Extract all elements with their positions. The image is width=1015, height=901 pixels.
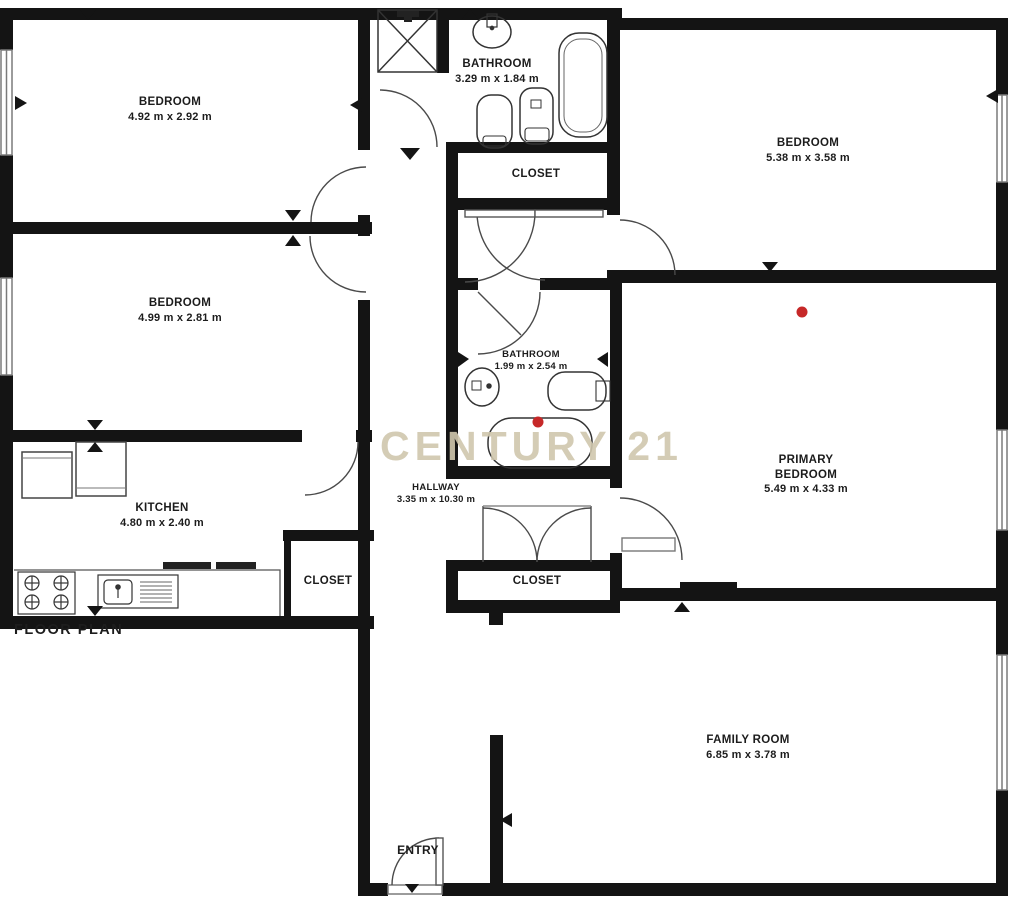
marker-triangle bbox=[986, 89, 998, 103]
door-arc-vestibule-left bbox=[465, 212, 535, 282]
room-name: CLOSET bbox=[513, 574, 561, 589]
room-label-bedroom-top-right: BEDROOM 5.38 m x 3.58 m bbox=[766, 136, 850, 165]
room-name: FAMILY ROOM bbox=[706, 733, 790, 748]
room-name: BATHROOM bbox=[455, 57, 539, 72]
room-label-primary-bedroom: PRIMARY BEDROOM 5.49 m x 4.33 m bbox=[764, 453, 848, 497]
room-dims: 4.80 m x 2.40 m bbox=[120, 516, 204, 530]
window bbox=[1, 278, 12, 375]
room-label-bathroom-mid: BATHROOM 1.99 m x 2.54 m bbox=[495, 349, 568, 373]
room-dims: 5.49 m x 4.33 m bbox=[764, 482, 848, 496]
marker-triangle bbox=[87, 606, 103, 616]
marker-triangle bbox=[597, 352, 608, 367]
kitchen-sink-icon bbox=[98, 575, 178, 608]
room-name: ENTRY bbox=[397, 843, 439, 858]
fixtures-layer bbox=[14, 10, 610, 616]
century21-watermark: CENTURY 21 bbox=[380, 423, 683, 470]
room-name: BEDROOM bbox=[128, 95, 212, 110]
room-label-hallway: HALLWAY 3.35 m x 10.30 m bbox=[397, 482, 475, 506]
room-label-bedroom-top-left: BEDROOM 4.92 m x 2.92 m bbox=[128, 95, 212, 124]
window bbox=[997, 655, 1007, 790]
door-arc-hall-closet-left bbox=[483, 508, 537, 562]
bidet-icon bbox=[520, 88, 553, 144]
stove-icon bbox=[18, 572, 75, 614]
marker-triangle bbox=[458, 352, 469, 367]
room-dims: 4.92 m x 2.92 m bbox=[128, 110, 212, 124]
door-leaf-bathroom-mid bbox=[478, 292, 521, 335]
room-label-bathroom-top: BATHROOM 3.29 m x 1.84 m bbox=[455, 57, 539, 86]
room-dims: 5.38 m x 3.58 m bbox=[766, 151, 850, 165]
room-label-bedroom-mid-left: BEDROOM 4.99 m x 2.81 m bbox=[138, 296, 222, 325]
toilet-icon bbox=[465, 368, 499, 406]
room-dims: 3.35 m x 10.30 m bbox=[397, 494, 475, 506]
room-name: BEDROOM bbox=[764, 468, 848, 483]
red-dot-marker bbox=[797, 307, 808, 318]
window bbox=[997, 430, 1007, 530]
marker-triangle bbox=[285, 210, 301, 221]
marker-triangle bbox=[87, 420, 103, 430]
floor-plan-title: FLOOR PLAN bbox=[14, 622, 123, 638]
marker-triangle bbox=[674, 602, 690, 612]
shower-icon bbox=[378, 10, 437, 72]
closet-door-panel bbox=[465, 210, 535, 217]
marker-triangle bbox=[15, 96, 27, 110]
door-arc-bedroom-top-right bbox=[620, 220, 675, 275]
room-label-closet-top: CLOSET bbox=[512, 167, 560, 182]
door-arc-bathroom-top bbox=[380, 90, 437, 147]
door-arc-bedroom-top-left bbox=[311, 167, 366, 222]
bathtub-icon bbox=[559, 33, 607, 137]
marker-triangle bbox=[350, 98, 362, 112]
door-arc-kitchen bbox=[305, 442, 358, 495]
room-name: PRIMARY bbox=[764, 453, 848, 468]
refrigerator-icon bbox=[22, 452, 72, 498]
toilet-icon bbox=[477, 95, 512, 148]
room-label-family-room: FAMILY ROOM 6.85 m x 3.78 m bbox=[706, 733, 790, 762]
floorplan-canvas: BEDROOM 4.92 m x 2.92 m BATHROOM 3.29 m … bbox=[0, 0, 1015, 901]
marker-triangle bbox=[285, 235, 301, 246]
room-name: CLOSET bbox=[304, 574, 352, 589]
marker-triangle bbox=[87, 442, 103, 452]
room-dims: 6.85 m x 3.78 m bbox=[706, 748, 790, 762]
room-label-closet-hall: CLOSET bbox=[513, 574, 561, 589]
door-arc-hall-closet-right bbox=[537, 508, 591, 562]
room-name: KITCHEN bbox=[120, 501, 204, 516]
window bbox=[997, 95, 1007, 182]
primary-closet-shelf bbox=[622, 538, 675, 551]
room-name: CLOSET bbox=[512, 167, 560, 182]
room-dims: 1.99 m x 2.54 m bbox=[495, 361, 568, 373]
room-name: HALLWAY bbox=[397, 482, 475, 494]
room-label-closet-kitchen: CLOSET bbox=[304, 574, 352, 589]
room-name: BEDROOM bbox=[766, 136, 850, 151]
room-label-entry: ENTRY bbox=[397, 843, 439, 858]
room-name: BEDROOM bbox=[138, 296, 222, 311]
bathtub-icon bbox=[548, 372, 610, 410]
room-dims: 4.99 m x 2.81 m bbox=[138, 311, 222, 325]
closet-door-panel bbox=[535, 210, 603, 217]
room-dims: 3.29 m x 1.84 m bbox=[455, 72, 539, 86]
marker-triangle bbox=[400, 148, 420, 160]
room-label-kitchen: KITCHEN 4.80 m x 2.40 m bbox=[120, 501, 204, 530]
door-arc-bedroom-mid-left bbox=[310, 236, 366, 292]
window bbox=[1, 50, 12, 155]
room-name: BATHROOM bbox=[495, 349, 568, 361]
